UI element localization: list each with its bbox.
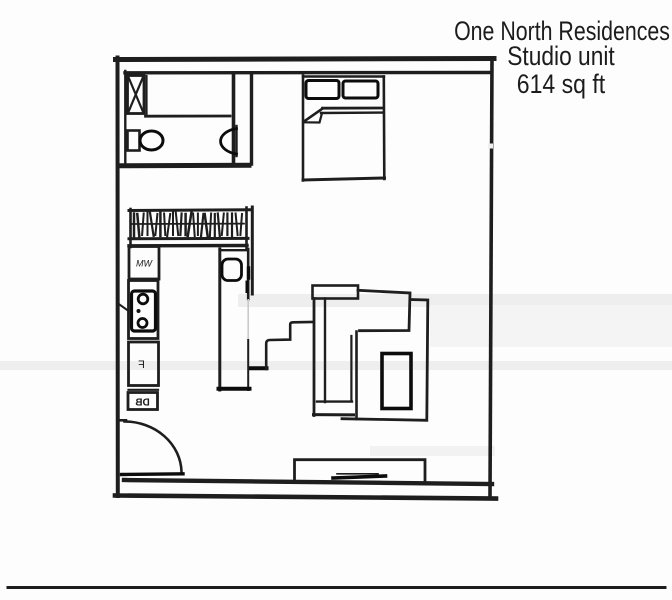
svg-text:F: F	[138, 359, 145, 371]
svg-text:DB: DB	[135, 398, 149, 409]
svg-text:MW: MW	[136, 259, 153, 269]
